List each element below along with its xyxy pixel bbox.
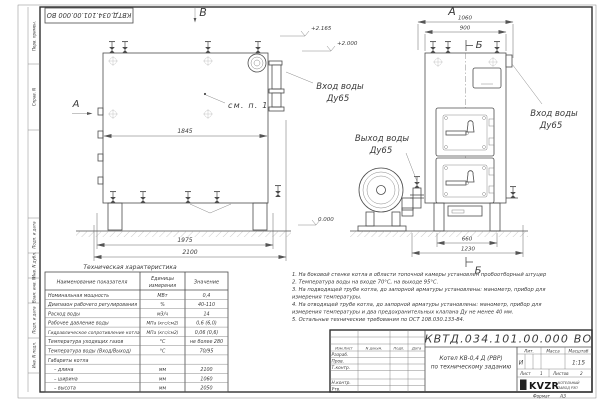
margin-label-perv-primen: Перв. примен. — [32, 21, 37, 51]
table-row: – длина мм 2100 — [54, 367, 213, 373]
boiler-front-view: Вход воды Ду65 — [350, 5, 578, 277]
tb-lit-value: И — [519, 360, 524, 367]
tb-row-tcontrol: Т.контр. — [332, 365, 351, 371]
row-unit: МПа (кгс/см2) — [147, 321, 179, 327]
margin-label-inv-podl: Инв. N подл. — [32, 342, 37, 368]
title-block: Изм.Лист N докум. Подп. Дата Разраб. Про… — [330, 330, 592, 393]
tb-mass-label: Масса — [546, 348, 560, 353]
view-a-arrow-icon — [87, 112, 93, 115]
row-unit: % — [160, 302, 165, 308]
view-label-a-top: А — [447, 5, 456, 18]
row-value: 2050 — [200, 386, 212, 392]
table-title: Техническая характеристика — [83, 264, 177, 271]
technical-notes: 1. На боковой стенке котла в области топ… — [292, 272, 547, 323]
dim-1230: 1230 — [461, 247, 475, 253]
row-value: 40-110 — [198, 302, 215, 308]
inlet-pipe-side — [269, 61, 284, 111]
tb-sheet-value: 1 — [540, 371, 543, 376]
row-unit: мм — [159, 387, 167, 392]
tb-row-approved: Утв. — [332, 387, 341, 393]
row-name: Диапазон рабочего регулирования — [47, 302, 137, 308]
dim-1975: 1975 — [177, 237, 192, 244]
kvzr-logo-text: KVZR — [529, 381, 560, 392]
dim-1060: 1060 — [458, 16, 472, 22]
row-name: Рабочее давление воды — [48, 321, 109, 327]
tb-scale-label: Масштаб — [569, 348, 589, 353]
kvzr-logo-icon — [520, 380, 527, 391]
inlet-right-size: Ду65 — [539, 121, 563, 131]
top-valves-side — [109, 42, 261, 53]
row-name: Номинальная мощность — [48, 293, 109, 299]
row-unit: °С — [160, 349, 166, 355]
document-name-line1: Котел КВ-0,4 Д (РВР) — [439, 356, 502, 362]
outlet-size: Ду65 — [369, 146, 393, 156]
note-line: 1. На боковой стенке котла в области топ… — [292, 272, 547, 278]
row-value: 14 — [203, 311, 209, 317]
margin-label-podp-data-2: Подп. и дата — [32, 306, 37, 334]
kvzr-logo-sub1: КОТЕЛЬНЫЙ — [558, 380, 580, 385]
row-name: Расход воды — [48, 311, 80, 317]
row-unit: м3/ч — [157, 311, 168, 317]
document-code: КВТД.034.101.00.000 ВО — [425, 333, 593, 346]
kvzr-logo-sub2: ЗАВОД РЭП — [558, 386, 578, 390]
view-label-a-side: А — [72, 99, 80, 110]
table-header-unit-2: измерения — [149, 284, 176, 289]
table-header-value: Значение — [194, 280, 219, 286]
format-value: А3 — [559, 394, 566, 400]
table-row: Номинальная мощность МВт 0,4 — [48, 293, 210, 299]
margin-label-sprav-n: Справ. N — [32, 88, 37, 106]
tb-sheets-value: 2 — [580, 371, 583, 376]
ground-hatch-right — [350, 231, 528, 237]
tb-header-doc: N докум. — [366, 346, 383, 350]
outlet-label: Выход воды — [355, 134, 409, 144]
dim-660: 660 — [462, 237, 473, 243]
tb-scale-value: 1:15 — [572, 361, 585, 367]
row-name: Температура уходящих газов — [48, 339, 123, 345]
tb-header-date: Дата — [411, 346, 421, 350]
row-value: 0,6 (6,0) — [196, 321, 217, 327]
tb-header-sign: Подп. — [394, 346, 405, 350]
note-line: 3. На подводящей трубе котла, до запорно… — [292, 287, 545, 293]
row-name: Гидравлическое сопротивление котла — [48, 330, 140, 336]
table-row: Габариты котла — [48, 358, 88, 364]
table-row: Диапазон рабочего регулирования % 40-110 — [47, 302, 215, 308]
table-row: – высота мм 2050 — [54, 386, 213, 392]
row-value: 1060 — [200, 376, 212, 382]
drawing-sheet: Перв. примен. Справ. N Подп. и дата Инв.… — [0, 0, 600, 400]
row-name: – ширина — [54, 377, 78, 382]
dim-1845: 1845 — [177, 128, 192, 135]
table-row: Температура уходящих газов °С не более 2… — [48, 339, 223, 345]
boiler-side-view: 1845 1975 2100 В А см. п. 1 Вход воды Ду… — [72, 6, 364, 261]
lower-door — [436, 158, 494, 203]
row-value: 70/95 — [200, 349, 214, 355]
elevation-top: +2.165 — [311, 26, 332, 32]
note-line: измерения температуры. — [292, 295, 362, 301]
note-line: 2. Температура воды на входе 70°С, на вы… — [292, 280, 438, 286]
flue-fan — [358, 168, 413, 231]
row-value: 0,4 — [203, 293, 211, 299]
view-v-arrow-icon — [194, 18, 197, 23]
margin-label-podp-data-1: Подп. и дата — [32, 221, 37, 249]
see-item-callout: см. п. 1 — [228, 101, 269, 110]
document-name-line2: по техническому заданию — [431, 365, 512, 371]
see-item-leader-dot — [204, 93, 206, 95]
row-unit: мм — [159, 368, 167, 373]
tb-row-developed: Разраб. — [332, 352, 349, 358]
table-header-unit-1: Единицы — [151, 276, 174, 282]
table-row: – ширина мм 1060 — [54, 376, 213, 382]
row-unit: мм — [159, 377, 167, 382]
top-stamp-code: КВТД.034.101.00.000 ВО — [47, 11, 132, 19]
margin-label-inv-dubl: Инв. N дубл. — [32, 252, 37, 278]
dim-2100: 2100 — [182, 249, 197, 256]
tb-header-izm: Изм.Лист — [335, 346, 353, 350]
margin-label-vzam-inv: Взам. инв. N — [32, 277, 37, 303]
table-row: Гидравлическое сопротивление котла МПа (… — [48, 330, 218, 336]
upper-door — [436, 108, 494, 156]
inlet-left-label: Вход воды — [316, 82, 364, 92]
tb-lit-label: Лит. — [523, 348, 534, 353]
elevation-zero: 0.000 — [318, 217, 334, 223]
row-name: Температура воды (Вход/Выход) — [48, 349, 131, 355]
row-value: 0,06 (0,6) — [195, 330, 219, 336]
format-label: Формат — [533, 394, 551, 399]
view-label-v: В — [199, 6, 207, 19]
inlet-flange-front — [506, 55, 512, 67]
tb-sheets-label: Листов — [552, 371, 569, 376]
row-unit: МВт — [157, 293, 167, 299]
row-value: не более 280 — [190, 339, 223, 345]
tb-sheet-label: Лист — [519, 371, 531, 376]
row-value: 2100 — [200, 367, 212, 373]
tb-row-ncontrol: Н.контр. — [332, 380, 351, 386]
elevation-marks: +2.165 +2.000 0.000 — [280, 26, 358, 225]
table-row: Температура воды (Вход/Выход) °С 70/95 — [48, 349, 213, 355]
row-unit: °С — [160, 339, 166, 345]
inlet-left-size: Ду65 — [326, 94, 350, 104]
elevation-mid: +2.000 — [337, 41, 358, 47]
row-name: – высота — [54, 387, 76, 392]
dim-900: 900 — [460, 26, 471, 32]
section-label-b-top: Б — [476, 40, 483, 51]
table-header-name: Наименование показателя — [57, 280, 128, 286]
note-line: 4. На отводящей трубе котла, до запорной… — [292, 302, 542, 308]
tb-row-checked: Пров. — [332, 359, 345, 365]
row-name: – длина — [54, 368, 74, 373]
control-panel — [473, 68, 501, 88]
inlet-right-label: Вход воды — [530, 109, 578, 119]
table-row: Рабочее давление воды МПа (кгс/см2) 0,6 … — [48, 321, 217, 327]
note-line: измерения температуры и два предохраните… — [292, 310, 513, 316]
note-line: 5. Остальные технические требования по О… — [292, 317, 464, 323]
boiler-drawing-svg: Перв. примен. Справ. N Подп. и дата Инв.… — [0, 0, 600, 400]
tech-characteristics-table: Техническая характеристика Наименование … — [45, 264, 228, 392]
row-unit: МПа (кгс/см2) — [147, 330, 179, 336]
row-name: Габариты котла — [48, 358, 88, 364]
